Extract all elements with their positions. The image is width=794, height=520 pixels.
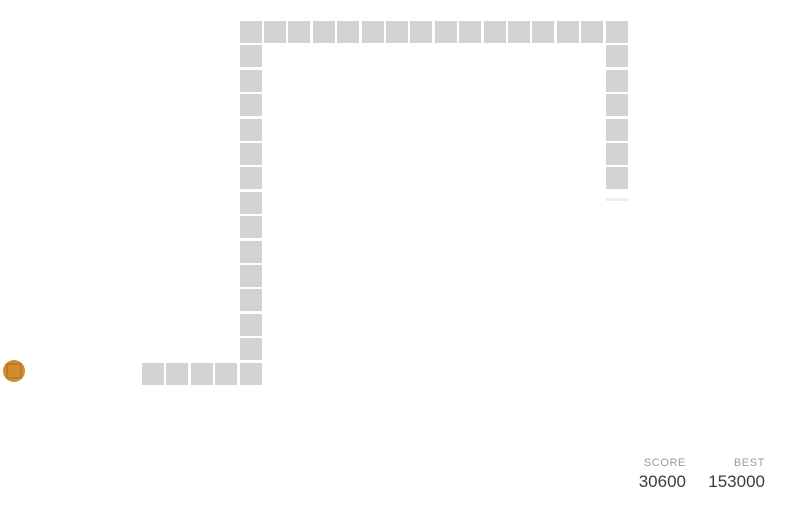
snake-segment: [606, 143, 628, 165]
snake-segment: [264, 21, 286, 43]
snake-segment: [240, 119, 262, 141]
snake-segment: [240, 192, 262, 214]
snake-segment: [581, 21, 603, 43]
snake-partial-head-segment: [606, 198, 628, 201]
snake-segment: [215, 363, 237, 385]
snake-segment: [362, 21, 384, 43]
snake-segment: [240, 143, 262, 165]
score-stat: SCORE 30600: [626, 457, 686, 492]
snake-segment: [240, 45, 262, 67]
snake-segment: [606, 45, 628, 67]
snake-segment: [191, 363, 213, 385]
best-label: BEST: [734, 457, 765, 470]
scoreboard: SCORE 30600 BEST 153000: [626, 457, 765, 492]
food-inner-square: [6, 363, 22, 379]
snake-segment: [313, 21, 335, 43]
snake-segment: [240, 21, 262, 43]
snake-segment: [532, 21, 554, 43]
snake-segment: [240, 289, 262, 311]
snake-segment: [606, 94, 628, 116]
snake-segment: [240, 167, 262, 189]
snake-segment: [508, 21, 530, 43]
snake-segment: [606, 119, 628, 141]
snake-segment: [606, 21, 628, 43]
snake-segment: [166, 363, 188, 385]
snake-segment: [337, 21, 359, 43]
snake-segment: [557, 21, 579, 43]
score-label: SCORE: [644, 457, 686, 470]
snake-segment: [240, 94, 262, 116]
snake-segment: [606, 70, 628, 92]
food-circle: [3, 360, 25, 382]
snake-segment: [606, 167, 628, 189]
snake-segment: [240, 216, 262, 238]
score-value: 30600: [639, 471, 686, 492]
game-board: [0, 0, 794, 520]
snake-segment: [288, 21, 310, 43]
snake-segment: [240, 265, 262, 287]
snake-segment: [386, 21, 408, 43]
snake-segment: [240, 314, 262, 336]
snake-segment: [410, 21, 432, 43]
snake-segment: [435, 21, 457, 43]
snake-segment: [240, 70, 262, 92]
snake-segment: [240, 338, 262, 360]
snake-segment: [240, 241, 262, 263]
snake-segment: [240, 363, 262, 385]
best-stat: BEST 153000: [705, 457, 765, 492]
snake-segment: [142, 363, 164, 385]
snake-segment: [459, 21, 481, 43]
best-value: 153000: [708, 471, 765, 492]
snake-segment: [484, 21, 506, 43]
